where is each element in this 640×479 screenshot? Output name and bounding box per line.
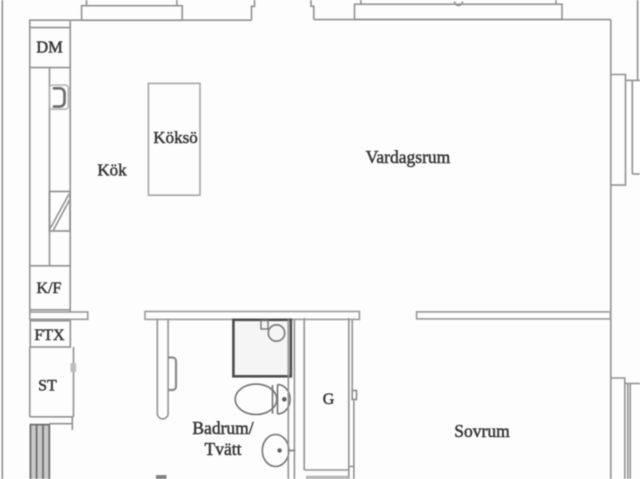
svg-text:Kök: Kök <box>97 161 127 180</box>
svg-text:Vardagsrum: Vardagsrum <box>366 147 451 167</box>
svg-text:G: G <box>323 391 335 408</box>
svg-text:ST: ST <box>38 378 57 395</box>
svg-text:FTX: FTX <box>34 327 65 344</box>
svg-text:Köksö: Köksö <box>153 128 197 147</box>
svg-text:Tvätt: Tvätt <box>205 439 242 459</box>
svg-text:DM: DM <box>36 38 63 57</box>
svg-text:Sovrum: Sovrum <box>454 421 510 441</box>
svg-text:K/F: K/F <box>37 280 62 297</box>
svg-text:Badrum/: Badrum/ <box>192 418 253 438</box>
